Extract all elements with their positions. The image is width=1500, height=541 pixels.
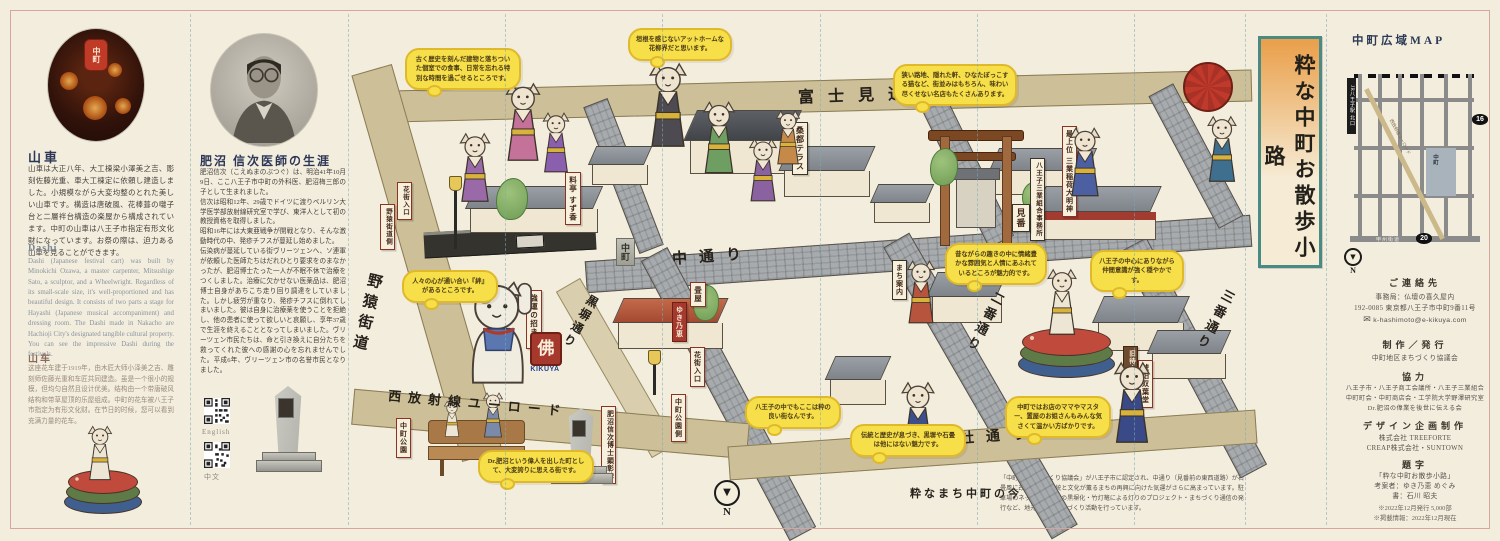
lantern-glow — [60, 72, 78, 90]
dashi-heading-zh: 山车 — [28, 350, 52, 365]
speech-bubble: 伝統と歴史が息づき、黒塀や石畳は他にはない魅力です。 — [850, 424, 966, 457]
station-label: JR八王子駅 北口 — [1347, 78, 1356, 134]
cat-on-cushion-illustration — [80, 424, 120, 482]
contact-line1: 事務局：仏壇の喜久屋内 — [1340, 291, 1490, 301]
publish-heading: 制作／発行 — [1340, 338, 1490, 351]
footer-line2: ※掲載情報：2022年12月現在 — [1340, 513, 1490, 522]
cat-illustration-blue-geisha — [1062, 112, 1108, 212]
cat-illustration-violet — [536, 100, 576, 185]
bubble-text: 中町ではお店のママやマスター、置屋のお姐さんもみんな気さくて温かい方ばかりです。 — [1014, 404, 1102, 430]
doctor-portrait-photo — [210, 33, 318, 147]
sign-sangyo-kumiai: 八王子三業組合事務所 — [1030, 158, 1045, 241]
contact-email: k-hashimoto@e-kikuya.com — [1373, 317, 1467, 324]
cat-illustration-walking — [900, 246, 942, 338]
coop-line3: Dr.肥沼の偉業を後世に伝える会 — [1334, 403, 1496, 412]
qr-code-english — [204, 398, 230, 424]
speech-bubble: 中町ではお店のママやマスター、置屋のお姐さんもみんな気さくて温かい方ばかりです。 — [1005, 396, 1111, 438]
mini-road-koshu — [1350, 236, 1480, 242]
boar-illustration-samurai — [893, 362, 943, 477]
footer-line1: ※2022年12月発行 5,000部 — [1340, 503, 1490, 512]
wide-area-map: 中町 西放射線ユーロード JR八王子駅 北口 16 20 甲州街道 — [1350, 52, 1480, 252]
fold-line — [662, 14, 663, 525]
qr-code-chinese — [204, 442, 230, 468]
north-label: N — [714, 506, 740, 518]
railway-line — [1354, 74, 1474, 78]
fold-line — [1245, 14, 1246, 525]
mini-north-indicator: ▼ N — [1344, 248, 1362, 275]
bubble-text: 昔ながらの趣きの中に情緒豊かな雰囲気と人情にあふれているところが魅力的です。 — [955, 251, 1037, 277]
shrine-box — [956, 174, 996, 228]
speech-bubble: 八王子の中心にありながら仲間意識が強く穏やかです。 — [1090, 250, 1184, 292]
festival-float-photo: 中町 — [47, 28, 145, 142]
sign-yaenkaido-gawa: 野猿街道側 — [380, 204, 395, 250]
route-16-badge: 16 — [1472, 114, 1488, 125]
nakacho-block-label: 中町 — [1431, 154, 1439, 165]
cat-illustration-shamisen-green — [695, 85, 743, 190]
design-line2: CREAP株式会社・SUNTOWN — [1340, 442, 1490, 452]
daiji-line1: 「粋な中町お散歩小路」 — [1340, 470, 1490, 480]
bubble-text: Dr.肥沼という偉人を出した町として、大変誇りに思える街です。 — [488, 458, 585, 474]
fence-window — [516, 234, 545, 248]
fold-line — [977, 14, 978, 525]
nakacho-stone-pillar: 中町 — [616, 238, 635, 266]
contact-heading: ご連絡先 — [1340, 276, 1490, 289]
fold-line — [1134, 14, 1135, 525]
wide-map-title: 中町広域MAP — [1352, 32, 1445, 48]
cat-illustration-parasol — [1200, 98, 1244, 200]
dashi-heading-en: Dashi — [28, 243, 57, 254]
speech-bubble: 昔ながらの趣きの中に情緒豊かな雰囲気と人情にあふれているところが魅力的です。 — [945, 243, 1047, 285]
pamphlet-title: 粋な中町お散歩小路 — [1261, 51, 1319, 265]
sign-kagai-iriguchi-west: 花街入口 — [397, 182, 412, 220]
shrine-roof — [952, 168, 1000, 180]
fold-line — [820, 14, 821, 525]
lantern-glow — [108, 63, 122, 77]
sign-kenban: 見番 — [1012, 204, 1030, 232]
dashi-body-zh: 这座花车建于1919年，由木匠大师小泽美之吉、雕刻师佐藤光重和车匠共同建造。虽是… — [28, 364, 174, 427]
koshu-kaido-label: 甲州街道 — [1376, 236, 1400, 243]
lantern-glow — [115, 98, 131, 114]
willow-tree — [496, 178, 528, 220]
contact-line2: 192-0085 東京都八王子市中町9番11号 — [1336, 302, 1494, 312]
lantern-glow — [83, 96, 107, 120]
qr-label-english: English — [202, 428, 230, 436]
kikuya-romaji: KIKUYA — [530, 366, 560, 373]
monument-base — [256, 460, 322, 472]
coop-line1: 八王子市・八王子商工会議所・八王子三業組合 — [1334, 383, 1496, 392]
speech-bubble: 垣根を感じないアットホームな花柳界だと思います。 — [628, 28, 732, 61]
cat-illustration-purple-seated — [452, 120, 498, 215]
qr-label-chinese: 中文 — [204, 472, 220, 482]
envelope-icon: ✉ — [1363, 315, 1371, 325]
title-banner: 粋な中町お散歩小路 — [1258, 36, 1322, 268]
mini-road — [1354, 194, 1474, 198]
bubble-text: 八王子の中心にありながら仲間意識が強く穏やかです。 — [1099, 258, 1175, 284]
sign-kagai-iriguchi: 花街入口 — [690, 347, 705, 387]
fold-line — [1326, 14, 1327, 525]
north-dial: ▼ — [714, 480, 740, 506]
bubble-text: 垣根を感じないアットホームな花柳界だと思います。 — [636, 36, 724, 52]
speech-bubble: 狭い路地、隠れた軒、ひなたぼっこする猫など、街並みはもちろん、味わい尽くせない名… — [893, 64, 1017, 106]
mini-road — [1420, 74, 1424, 240]
publish-body: 中町地区まちづくり協議会 — [1340, 352, 1490, 362]
willow-tree — [930, 148, 958, 186]
daiji-line2: 考案者：ゆき乃恵 めぐみ — [1340, 480, 1490, 490]
portrait-silhouette — [211, 34, 317, 146]
street-label-yaen: 野猿街道 — [347, 271, 386, 358]
mini-road — [1354, 146, 1474, 150]
sign-nakacho-koen: 中町公園 — [396, 418, 411, 458]
pamphlet: { "left_panel": { "jp": {"heading": "山車"… — [0, 0, 1500, 539]
building — [830, 356, 886, 404]
mini-north-label: N — [1344, 266, 1362, 275]
contact-email-row: ✉ k-hashimoto@e-kikuya.com — [1340, 315, 1490, 325]
doctor-body: 肥沼信次（こえぬまのぶつぐ）は、明治41年10月9日、ここ八王子市中町の外科医、… — [200, 168, 346, 376]
mini-north-dial: ▼ — [1344, 248, 1362, 266]
monument-portrait — [278, 398, 294, 418]
butsudan-kanji: 佛 — [530, 332, 562, 366]
speech-bubble: 人々の心が通い合い『絆』があるところです。 — [402, 270, 498, 303]
speech-bubble: Dr.肥沼という偉人を出した町として、大変誇りに思える街です。 — [478, 450, 594, 483]
route-20-badge: 20 — [1416, 233, 1432, 244]
cat-illustration-writer-fan — [1105, 340, 1159, 465]
mini-road — [1378, 74, 1382, 240]
sign-yukinoe: ゆき乃恵 — [672, 302, 687, 342]
daiji-line3: 書：石川 昭夫 — [1340, 490, 1490, 500]
monument-photo — [252, 386, 324, 504]
kikuya-shop-mark: 佛 KIKUYA — [530, 332, 560, 373]
sign-nakacho-koen-gawa: 中町公園側 — [671, 394, 686, 442]
coop-heading: 協力 — [1340, 370, 1490, 383]
coop-line2: 中町町会・中町商店会・工学院大学野澤研究室 — [1334, 393, 1496, 402]
nakacho-lantern: 中町 — [84, 39, 108, 71]
torii-gate — [928, 128, 1024, 248]
building — [874, 184, 930, 222]
bubble-text: 古く歴史を刻んだ建物と落ちついた個室での食事、日常を忘れる特別な時間を過ごせると… — [416, 56, 510, 82]
speech-bubble: 古く歴史を刻んだ建物と落ちついた個室での食事、日常を忘れる特別な時間を過ごせると… — [405, 48, 521, 90]
stone-lantern — [648, 350, 661, 395]
north-indicator: ▼ N — [714, 480, 740, 518]
doctor-heading: 肥沼 信次医師の生涯 — [200, 152, 331, 169]
bubble-text: 狭い路地、隠れた軒、ひなたぼっこする猫など、街並みはもちろん、味わい尽くせない名… — [902, 72, 1009, 98]
mini-road — [1358, 74, 1362, 240]
fold-line — [505, 14, 506, 525]
mini-road — [1468, 74, 1472, 240]
speech-bubble: 八王子の中でもここは粋の良い街なんです。 — [745, 396, 841, 429]
sign-tatamiya: 畳屋 — [690, 282, 706, 307]
design-line1: 株式会社 TREEFORTE — [1340, 432, 1490, 442]
design-heading: デザイン企画制作 — [1340, 419, 1490, 432]
bubble-text: 伝統と歴史が息づき、黒塀や石畳は他にはない魅力です。 — [861, 432, 955, 448]
cat-illustration-orange — [770, 100, 806, 175]
fold-line — [348, 14, 349, 525]
fold-line — [190, 14, 191, 525]
dashi-body-en: Dashi (Japanese festival cart) was built… — [28, 257, 174, 361]
bubble-text: 人々の心が通い合い『絆』があるところです。 — [412, 278, 488, 294]
